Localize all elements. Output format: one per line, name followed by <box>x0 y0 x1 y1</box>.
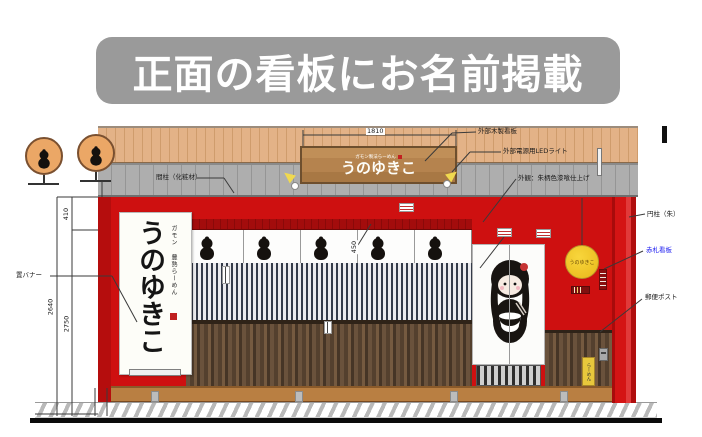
kokeshi-icon <box>370 233 386 260</box>
yellow-menu-sign: らーめん <box>582 357 595 386</box>
label-wall-finish: 外観：朱柄色漆喰仕上げ <box>518 175 590 182</box>
kokeshi-icon <box>199 233 215 260</box>
round-lantern-sign: うのゆきこ <box>565 245 599 279</box>
spec-tag <box>324 321 332 334</box>
spotlight-lamp-icon <box>291 182 299 190</box>
pole-base <box>80 180 111 182</box>
kokeshi-icon <box>89 143 102 165</box>
base-foot <box>450 391 458 402</box>
red-wall-left-pillar <box>98 197 111 403</box>
noren-rail <box>186 219 472 230</box>
standing-banner: ガモン 豊熟らーめん うのゆきこ <box>119 212 192 375</box>
door-grate <box>476 365 541 386</box>
spec-tag <box>222 266 230 284</box>
base-foot <box>151 391 159 402</box>
mascot-doll-illustration <box>483 257 537 353</box>
header-title: 正面の看板にお名前掲載 <box>133 42 584 100</box>
label-red-tag: 赤札看板 <box>646 247 672 254</box>
dim-lower: 2750 <box>62 316 70 333</box>
round-sign-text: うのゆきこ <box>569 259 594 266</box>
base-foot <box>295 391 303 402</box>
spec-tag <box>497 228 512 237</box>
kokeshi-icon <box>427 233 443 260</box>
header-banner: 正面の看板にお名前掲載 <box>96 37 620 104</box>
spec-tag <box>399 203 414 212</box>
noren-top-band <box>186 230 472 263</box>
promo-image: 正面の看板にお名前掲載 ガモン製法らーめん うのゆきこ ガモン 豊熟らーめん う… <box>0 0 702 437</box>
crop-mark <box>662 126 667 143</box>
spec-tag <box>536 229 551 238</box>
dim-upper: 410 <box>62 208 70 220</box>
main-signboard: ガモン製法らーめん うのゆきこ <box>300 146 457 184</box>
dim-total: 2640 <box>46 299 54 316</box>
ground-line <box>30 418 662 423</box>
mailbox <box>599 348 608 361</box>
dim-noren: 450 <box>350 240 358 254</box>
pole-base <box>28 183 59 185</box>
pole-sign-2 <box>77 134 115 172</box>
vertical-tag-sign <box>599 269 607 290</box>
signboard-name: うのゆきこ <box>341 160 416 176</box>
dim-sign-width: 1810 <box>366 128 385 135</box>
label-mailbox: 郵便ポスト <box>645 294 678 301</box>
label-led-light: 外部電源用LEDライト <box>503 148 568 155</box>
banner-subtitle: ガモン 豊熟らーめん <box>169 225 178 296</box>
red-corner-column <box>612 197 636 403</box>
pole <box>43 175 45 183</box>
label-column: 円柱（朱） <box>647 211 687 218</box>
label-stud: 間柱（化粧材） <box>156 174 202 181</box>
kokeshi-icon <box>37 146 50 168</box>
banner-name: うのゆきこ <box>134 219 164 354</box>
red-tag-sign <box>571 286 590 294</box>
pole <box>95 172 97 180</box>
wall-bracket <box>597 148 602 176</box>
door-curtain <box>472 244 545 365</box>
kokeshi-icon <box>256 233 272 260</box>
spotlight-lamp-icon <box>443 180 451 188</box>
kokeshi-icon <box>313 233 329 260</box>
seal-icon <box>170 313 177 320</box>
pole-sign-1 <box>25 137 63 175</box>
ground-hatch <box>35 402 657 418</box>
base-board <box>111 386 636 402</box>
banner-weight-bar <box>129 369 181 376</box>
label-standing-banner: 置バナー <box>16 272 42 279</box>
label-wood-sign: 外部木製看板 <box>478 128 517 135</box>
base-foot <box>560 391 568 402</box>
yellow-sign-text: らーめん <box>586 363 591 381</box>
